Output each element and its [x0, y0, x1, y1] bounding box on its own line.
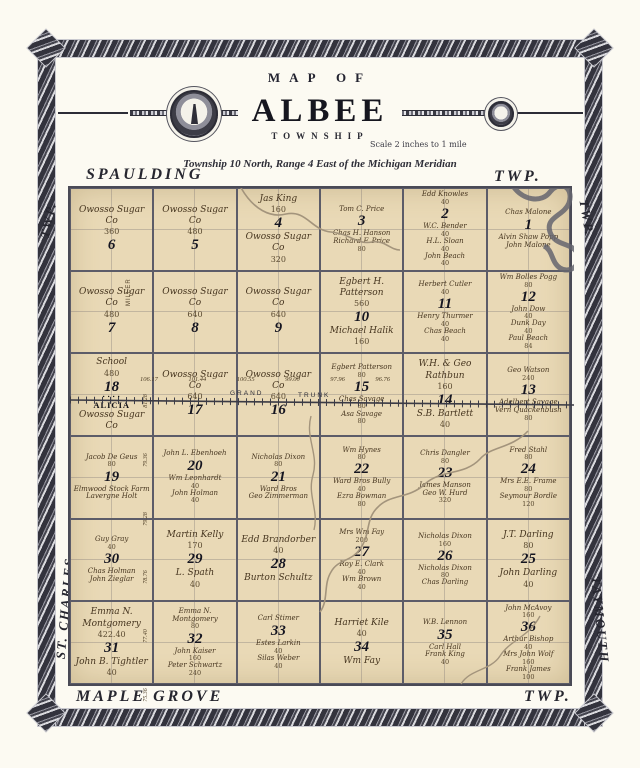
parcel-acreage: 640: [156, 310, 233, 320]
parcel-label: Owosso Sugar Co640: [240, 370, 317, 403]
parcel-acreage: 160: [505, 612, 551, 619]
parcel-label: S.B. Bartlett40: [417, 409, 473, 430]
parcel-label: Ezra Bowman80: [337, 493, 386, 508]
parcel-acreage: 40: [241, 546, 315, 556]
parcel-label: Owosso Sugar Co480: [156, 205, 233, 238]
map-section-23: Chris Dangler8023James MansonGeo W. Hurd…: [403, 436, 486, 519]
border-corner: [28, 30, 65, 67]
map-section-2: Edd Knowles402W.C. Bender40H.L. Sloan40J…: [403, 188, 486, 271]
border-corner: [576, 30, 613, 67]
measure-value: 96.76: [375, 376, 390, 383]
section-number: 36: [521, 620, 536, 635]
parcel-label: John L. Ebenhoeh: [164, 450, 227, 458]
survey-measures-top: 106.17101.44100.5599.0097.9696.76: [140, 376, 390, 383]
parcel-label: Martin Kelly170: [167, 530, 224, 551]
section-number: 12: [521, 290, 536, 305]
section-number: 23: [437, 466, 452, 481]
parcel-label: Nicholas Dixon80: [418, 565, 472, 580]
parcel-label: Wm Fay: [343, 656, 380, 667]
section-number: 30: [104, 552, 119, 567]
map-title: ALBEE: [238, 93, 403, 130]
parcel-acreage: 640: [240, 310, 317, 320]
edge-label-twp-bottomright: TWP.: [524, 688, 572, 706]
township-map: Owosso Sugar Co3606Owosso Sugar Co4805Ja…: [68, 186, 572, 686]
parcel-label: Chas Beach40: [424, 328, 466, 343]
town-label-alicia: ALICIA: [93, 400, 130, 410]
section-number: 17: [187, 403, 202, 418]
map-section-33: Carl Stimer33Estes Larkin40Silas Weber40: [237, 601, 320, 684]
parcel-label: John Darling40: [499, 568, 557, 589]
parcel-label: Arthur Bishop40: [503, 636, 553, 651]
measure-value: 79.28: [143, 512, 149, 526]
survey-measures-left: 81.2879.3679.2878.7677.4075.36: [139, 398, 153, 698]
section-number: 7: [108, 321, 116, 336]
parcel-acreage: 40: [335, 629, 389, 639]
parcel-acreage: 240: [168, 670, 222, 677]
section-number: 26: [437, 549, 452, 564]
measure-value: 79.36: [143, 453, 149, 467]
parcel-label: Geo Zimmerman: [249, 493, 308, 501]
parcel-label: John Beach40: [425, 253, 465, 268]
parcel-label: Ward Bros Bully40: [333, 478, 390, 493]
parcel-label: Wm Bolles Pogg80: [500, 274, 557, 289]
parcel-acreage: 160: [406, 382, 483, 392]
parcel-label: John Dow40: [511, 306, 545, 321]
medallion-icon: [488, 101, 514, 127]
parcel-label: Wm Leonhardt40: [169, 475, 222, 490]
parcel-acreage: 80: [251, 461, 305, 468]
parcel-label: Silas Weber40: [257, 655, 299, 670]
map-section-21: Nicholas Dixon8021Ward BrosGeo Zimmerman: [237, 436, 320, 519]
map-section-14: W.H. & Geo Rathbun16014S.B. Bartlett40: [403, 353, 486, 436]
section-number: 11: [438, 297, 452, 312]
parcel-acreage: 240: [507, 375, 549, 382]
parcel-label: Frank James100: [506, 666, 551, 681]
parcel-acreage: 40: [95, 544, 128, 551]
parcel-label: Chris Dangler80: [420, 450, 470, 465]
parcel-acreage: 120: [500, 501, 557, 508]
parcel-label: Nicholas Dixon160: [418, 533, 472, 548]
parcel-acreage: 480: [96, 369, 127, 379]
parcel-label: Edd Brandorber40: [241, 535, 315, 556]
section-number: 9: [275, 321, 283, 336]
parcel-acreage: 40: [257, 663, 299, 670]
section-number: 10: [354, 310, 369, 325]
section-number: 1: [525, 218, 533, 233]
parcel-label: Egbert H. Patterson560: [323, 277, 400, 310]
parcel-acreage: 40: [422, 199, 468, 206]
parcel-label: John B. Tightler40: [75, 657, 147, 678]
map-section-16: Owosso Sugar Co64016: [237, 353, 320, 436]
border-weave-bottom: [38, 709, 602, 726]
parcel-label: Geo Watson240: [507, 367, 549, 382]
section-number: 16: [271, 403, 286, 418]
parcel-label: John Zieglar: [90, 576, 134, 584]
map-section-11: Herbert Cutler4011Henry Thurmer40Chas Be…: [403, 271, 486, 354]
parcel-label: Seymour Bordle120: [500, 493, 557, 508]
parcel-label: L. Spath40: [176, 568, 214, 589]
measure-value: 100.55: [237, 376, 255, 383]
section-number: 28: [271, 557, 286, 572]
parcel-label: Lavergne Holt: [86, 493, 137, 501]
parcel-acreage: 80: [341, 418, 382, 425]
parcel-acreage: 40: [176, 580, 214, 590]
title-ornament-line: [58, 112, 128, 114]
parcel-label: Chas Savage80: [339, 396, 385, 411]
section-number: 14: [437, 393, 452, 408]
parcel-label: Owosso Sugar Co640: [156, 287, 233, 320]
section-number: 19: [104, 470, 119, 485]
township-word: TOWNSHIP: [70, 131, 570, 141]
parcel-label: Asa Savage80: [341, 411, 382, 426]
title-ornament-line: [508, 112, 583, 114]
parcel-acreage: 40: [342, 584, 381, 591]
section-number: 35: [437, 628, 452, 643]
parcel-label: Owosso Sugar Co640: [240, 287, 317, 320]
parcel-label: Mrs Wm Fay200: [339, 529, 384, 544]
parcel-label: John McAvoy160: [505, 605, 551, 620]
border-weave-left: [38, 40, 55, 726]
parcel-acreage: 360: [73, 227, 150, 237]
parcel-acreage: 170: [167, 541, 224, 551]
section-number: 6: [108, 238, 116, 253]
section-number: 25: [521, 552, 536, 567]
map-section-7: Owosso Sugar Co4807: [70, 271, 153, 354]
parcel-acreage: 40: [424, 336, 466, 343]
parcel-acreage: 640: [156, 392, 233, 402]
map-of-text: MAP OF: [70, 70, 570, 86]
section-number: 5: [191, 238, 199, 253]
map-section-6: Owosso Sugar Co3606: [70, 188, 153, 271]
parcel-label: Dunk Day40: [511, 320, 546, 335]
map-section-3: Tom C. Price3Chas H. HansonRichard F. Pr…: [320, 188, 403, 271]
parcel-label: Wm Hynes80: [342, 447, 380, 462]
map-section-13: Geo Watson24013Adelbert SavageVern Quack…: [487, 353, 570, 436]
map-section-25: J.T. Darling8025John Darling40: [487, 519, 570, 602]
parcel-label: Emma N. Montgomery80: [156, 608, 233, 631]
map-section-35: W.B. Lennon35Carl HallFrank King40: [403, 601, 486, 684]
parcel-label: Nicholas Dixon80: [251, 454, 305, 469]
section-number: 20: [187, 459, 202, 474]
parcel-acreage: 84: [509, 343, 548, 350]
parcel-acreage: 560: [323, 299, 400, 309]
section-number: 8: [191, 321, 199, 336]
parcel-label: W.C. Bender40: [423, 223, 467, 238]
map-section-29: Martin Kelly17029L. Spath40: [153, 519, 236, 602]
parcel-label: John Kaiser160: [174, 648, 215, 663]
parcel-label: Paul Beach84: [509, 335, 548, 350]
parcel-label: School480: [96, 357, 127, 378]
map-section-22: Wm Hynes8022Ward Bros Bully40Ezra Bowman…: [320, 436, 403, 519]
parcel-label: Herbert Cutler40: [418, 281, 471, 296]
title-block: MAP OF ALBEE TOWNSHIP Scale 2 inches to …: [70, 68, 570, 180]
map-section-5: Owosso Sugar Co4805: [153, 188, 236, 271]
section-number: 32: [187, 632, 202, 647]
section-number: 13: [521, 383, 536, 398]
section-number: 24: [521, 462, 536, 477]
parcel-acreage: 40: [425, 659, 465, 666]
parcel-label: John Holman40: [172, 490, 218, 505]
parcel-label: Owosso Sugar Co320: [240, 232, 317, 265]
parcel-label: Jacob De Geus80: [86, 454, 138, 469]
parcel-acreage: 40: [418, 289, 471, 296]
parcel-acreage: 160: [418, 541, 472, 548]
parcel-acreage: 80: [500, 282, 557, 289]
map-section-20: John L. Ebenhoeh20Wm Leonhardt40John Hol…: [153, 436, 236, 519]
section-number: 33: [271, 624, 286, 639]
parcel-label: Chas Darling: [422, 579, 468, 587]
edge-label-spaulding: SPAULDING: [86, 166, 203, 184]
section-number: 22: [354, 462, 369, 477]
map-section-27: Mrs Wm Fay20027Roy E. Clark40Wm Brown40: [320, 519, 403, 602]
parcel-label: Estes Larkin40: [256, 640, 301, 655]
map-section-10: Egbert H. Patterson56010Michael Halik160: [320, 271, 403, 354]
map-section-17: Owosso Sugar Co64017: [153, 353, 236, 436]
parcel-label: Fred Stahl80: [510, 447, 548, 462]
section-number: 34: [354, 640, 369, 655]
parcel-acreage: 40: [499, 580, 557, 590]
parcel-acreage: 80: [337, 501, 386, 508]
parcel-label: Geo W. Hurd320: [422, 490, 467, 505]
map-section-36: John McAvoy16036Arthur Bishop40Mrs John …: [487, 601, 570, 684]
measure-value: 99.00: [285, 376, 300, 383]
parcel-acreage: 80: [495, 415, 562, 422]
section-number: 2: [441, 207, 449, 222]
measure-value: 77.40: [143, 629, 149, 643]
parcel-label: Carl Stimer: [258, 615, 299, 623]
section-number: 31: [104, 641, 119, 656]
map-section-9: Owosso Sugar Co6409: [237, 271, 320, 354]
map-section-12: Wm Bolles Pogg8012John Dow40Dunk Day40Pa…: [487, 271, 570, 354]
parcel-acreage: 40: [172, 497, 218, 504]
parcel-label: Owosso Sugar Co640: [156, 370, 233, 403]
parcel-acreage: 160: [260, 205, 298, 215]
measure-value: 75.36: [143, 688, 149, 702]
parcel-acreage: 480: [156, 227, 233, 237]
parcel-label: Roy E. Clark40: [339, 561, 384, 576]
parcel-label: Richard F. Price80: [333, 238, 390, 253]
parcel-label: W.B. Lennon: [423, 619, 467, 627]
parcel-acreage: 80: [510, 454, 548, 461]
parcel-acreage: 640: [240, 392, 317, 402]
section-number: 3: [358, 214, 366, 229]
parcel-label: J.T. Darling80: [503, 530, 553, 551]
map-section-34: Harriet Kile4034Wm Fay: [320, 601, 403, 684]
parcel-acreage: 160: [330, 337, 394, 347]
parcel-label: Harriet Kile40: [335, 618, 389, 639]
parcel-label: Burton Schultz: [244, 573, 312, 584]
parcel-label: Owosso Sugar Co480: [73, 287, 150, 320]
parcel-label: Jas King160: [260, 194, 298, 215]
measure-value: 101.44: [188, 376, 206, 383]
parcel-acreage: 80: [342, 454, 380, 461]
parcel-label: Michael Halik160: [330, 326, 394, 347]
parcel-label: W.H. & Geo Rathbun160: [406, 359, 483, 392]
parcel-label: Henry Thurmer40: [417, 313, 472, 328]
parcel-label: Chas Malone: [505, 209, 551, 217]
parcel-label: Vern Quackenbush80: [495, 407, 562, 422]
parcel-label: Wm Brown40: [342, 576, 381, 591]
parcel-acreage: 100: [506, 674, 551, 681]
parcel-label: Edd Knowles40: [422, 191, 468, 206]
map-section-15: Egbert Patterson8015Chas Savage80Asa Sav…: [320, 353, 403, 436]
parcel-label: H.L. Sloan40: [426, 238, 463, 253]
parcel-acreage: 40: [425, 260, 465, 267]
border-weave-top: [38, 40, 602, 57]
parcel-acreage: 80: [503, 541, 553, 551]
map-section-8: Owosso Sugar Co6408: [153, 271, 236, 354]
section-number: 29: [187, 552, 202, 567]
map-section-32: Emma N. Montgomery8032John Kaiser160Pete…: [153, 601, 236, 684]
map-section-24: Fred Stahl8024Mrs E.E. Frame80Seymour Bo…: [487, 436, 570, 519]
parcel-acreage: 80: [86, 461, 138, 468]
parcel-acreage: 80: [420, 458, 470, 465]
map-section-28: Edd Brandorber4028Burton Schultz: [237, 519, 320, 602]
parcel-acreage: 80: [333, 246, 390, 253]
map-section-1: Chas Malone1Alvin Shaw PoppJohn Malone: [487, 188, 570, 271]
parcel-label: Frank King40: [425, 651, 465, 666]
parcel-label: Owosso Sugar Co360: [73, 205, 150, 238]
parcel-label: John Malone: [506, 242, 551, 250]
parcel-acreage: 480: [73, 310, 150, 320]
section-number: 27: [354, 545, 369, 560]
parcel-acreage: 200: [339, 537, 384, 544]
section-number: 4: [275, 216, 283, 231]
parcel-acreage: 80: [156, 623, 233, 630]
measure-value: 81.28: [143, 394, 149, 408]
measure-value: 78.76: [143, 571, 149, 585]
parcel-label: Mrs John Wolf160: [503, 651, 553, 666]
parcel-acreage: 40: [417, 420, 473, 430]
section-number: 18: [104, 380, 119, 395]
scale-note: Scale 2 inches to 1 mile: [370, 140, 467, 149]
parcel-label: Tom C. Price: [339, 206, 384, 214]
parcel-label: Guy Gray40: [95, 536, 128, 551]
map-section-26: Nicholas Dixon16026Nicholas Dixon80Chas …: [403, 519, 486, 602]
parcel-acreage: 320: [240, 255, 317, 265]
map-section-4: Jas King1604Owosso Sugar Co320: [237, 188, 320, 271]
parcel-label: Peter Schwartz240: [168, 662, 222, 677]
section-number: 21: [271, 470, 286, 485]
plat-map-page: MAP OF ALBEE TOWNSHIP Scale 2 inches to …: [0, 0, 640, 768]
parcel-label: Mrs E.E. Frame80: [500, 478, 556, 493]
parcel-acreage: 40: [75, 668, 147, 678]
parcel-acreage: 320: [422, 497, 467, 504]
measure-value: 106.17: [140, 376, 158, 383]
measure-value: 97.96: [330, 376, 345, 383]
edge-label-twp-topright: TWP.: [494, 168, 542, 186]
